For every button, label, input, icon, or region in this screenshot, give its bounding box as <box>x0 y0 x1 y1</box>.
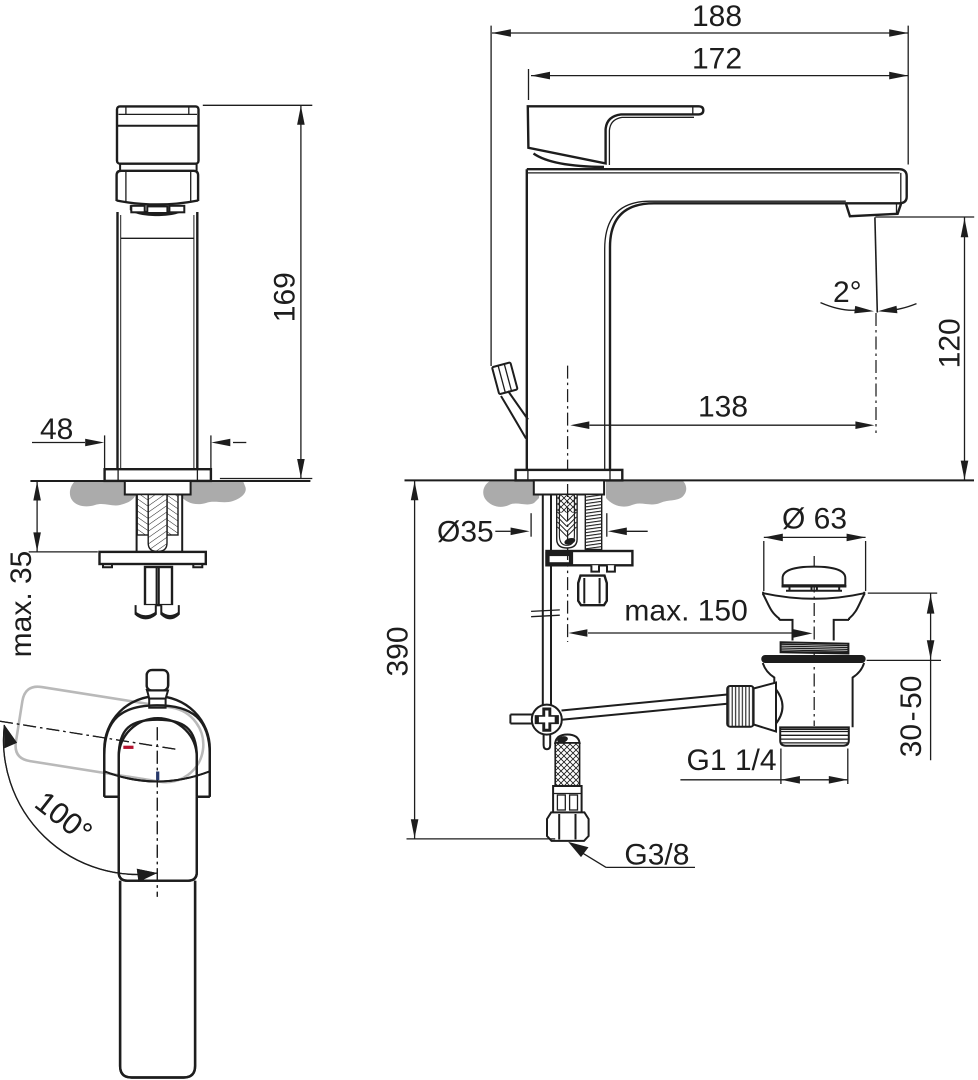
svg-text:G3/8: G3/8 <box>624 839 689 872</box>
svg-text:max. 150: max. 150 <box>624 595 747 628</box>
svg-text:169: 169 <box>269 272 302 322</box>
svg-text:120: 120 <box>934 318 967 368</box>
svg-text:max. 35: max. 35 <box>5 551 38 658</box>
svg-text:Ø 63: Ø 63 <box>782 503 847 536</box>
svg-text:172: 172 <box>692 43 742 76</box>
svg-text:138: 138 <box>698 391 748 424</box>
svg-text:188: 188 <box>692 0 742 33</box>
svg-text:30 - 50: 30 - 50 <box>895 676 928 758</box>
svg-text:390: 390 <box>382 626 415 676</box>
svg-text:Ø35: Ø35 <box>437 516 494 549</box>
svg-text:G1 1/4: G1 1/4 <box>687 744 777 777</box>
svg-text:48: 48 <box>40 413 73 446</box>
svg-text:2°: 2° <box>833 276 862 309</box>
